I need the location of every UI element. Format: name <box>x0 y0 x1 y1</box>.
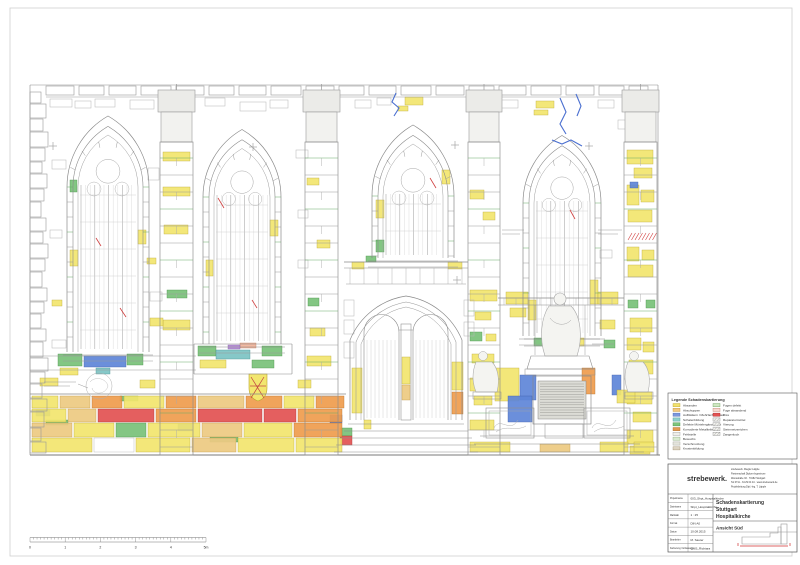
damage-patch-G <box>470 332 482 341</box>
damage-patch-Y <box>244 423 292 437</box>
damage-patch-Y <box>140 380 155 388</box>
damage-patch-Y <box>627 247 639 261</box>
damage-patch-Y <box>627 150 653 164</box>
legend-swatch <box>673 408 680 411</box>
stone-outline <box>130 100 154 109</box>
tracery-rosette <box>551 177 573 199</box>
legend-box: Legende Schadenskartierung AbsandenAbsch… <box>668 393 797 459</box>
damage-patch-T <box>68 409 96 422</box>
damage-patch-T <box>540 444 570 452</box>
damage-patch-G <box>646 300 655 308</box>
drawing-line <box>639 233 643 240</box>
pinnacle-cap <box>161 112 192 142</box>
field-label: Datum <box>670 530 677 533</box>
damage-patch-O <box>298 409 342 422</box>
crack-blue <box>552 140 582 146</box>
damage-patch-Y <box>206 260 213 276</box>
damage-patch-Y <box>60 368 78 375</box>
legend-swatch <box>673 413 680 416</box>
stone-outline <box>499 86 526 95</box>
legend-swatch <box>713 413 720 416</box>
stone-outline <box>30 174 47 188</box>
damage-patch-Y <box>364 420 371 429</box>
tracery-rosette <box>96 159 120 183</box>
legend-label: Steinmetzzeichen <box>723 428 748 432</box>
pinnacle-cap <box>466 90 502 112</box>
damage-patch-T <box>60 396 90 408</box>
damage-patch-G <box>127 354 143 365</box>
drawing-line <box>404 151 405 157</box>
drawing-line <box>141 167 146 170</box>
damage-patch-B <box>84 356 126 367</box>
damage-patch-Y <box>164 225 188 234</box>
pinnacle-cap <box>158 90 195 112</box>
damage-patch-B <box>508 396 532 422</box>
damage-patch-O <box>452 392 463 414</box>
field-label: Maßstab <box>670 514 680 517</box>
stone-outline <box>531 86 561 95</box>
stone-outline <box>240 102 266 111</box>
drawing-line <box>436 160 439 165</box>
damage-patch-Y <box>442 170 450 184</box>
legend-label: Fuge absandend <box>723 408 747 412</box>
damage-patch-Y <box>270 220 278 236</box>
legend-label: Korrodierte Metallteile <box>683 428 713 432</box>
field-value: QMS_Richtara <box>691 546 711 550</box>
stone-outline <box>209 86 234 95</box>
address-line: Projektleitung Dipl.-Ing. T. Läpple <box>731 486 767 489</box>
damage-patch-Y <box>643 342 654 352</box>
damage-patch-G <box>262 346 282 356</box>
drawing-line <box>583 169 586 174</box>
drawing-sheet-page: Legende Schadenskartierung AbsandenAbsch… <box>0 0 800 565</box>
stone-outline <box>30 189 44 201</box>
stone-outline <box>30 358 48 371</box>
field-label: Format <box>670 522 678 525</box>
damage-patch-Y <box>627 338 641 350</box>
damage-patch-T <box>198 396 244 408</box>
damage-patch-R <box>198 409 262 422</box>
drawing-path <box>67 116 149 352</box>
stone-outline <box>377 98 391 105</box>
damage-patch-T <box>192 438 236 452</box>
legend-label: Absanden <box>683 404 697 408</box>
stone-outline <box>50 99 72 107</box>
drawing-line <box>387 160 390 165</box>
damage-patch-Y <box>475 312 491 320</box>
logo-text: strebewerk. <box>687 474 727 483</box>
pinnacle-cap <box>622 90 659 112</box>
drawing-path <box>209 140 275 344</box>
crack-red <box>252 300 257 308</box>
stone-outline <box>95 99 115 107</box>
legend-swatch <box>673 423 680 426</box>
field-value: DIN A0 <box>691 521 701 525</box>
damage-patch-Y <box>486 334 496 341</box>
tracery-circle <box>569 198 582 211</box>
scale-label: 1 <box>64 546 66 550</box>
damage-patch-T <box>402 385 410 400</box>
stone-outline <box>239 86 266 95</box>
scale-label: 3 <box>135 546 137 550</box>
damage-patch-Y <box>298 380 311 388</box>
legend-label: Riss <box>723 413 729 417</box>
damage-patch-Y <box>124 396 164 408</box>
drawing-line <box>628 233 632 240</box>
scale-label: 5m <box>204 546 209 550</box>
stone-outline <box>270 100 288 108</box>
stone-outline <box>30 314 41 328</box>
legend-swatch <box>713 408 720 411</box>
tracery-circle <box>249 192 262 205</box>
statue-pedestal <box>527 356 593 369</box>
crack-red <box>430 178 436 188</box>
drawing-line <box>217 163 220 168</box>
damage-patch-Y <box>470 190 484 199</box>
stone-outline <box>298 260 308 268</box>
drawing-path <box>378 135 448 258</box>
portal-door-arch <box>364 315 399 421</box>
legend-label: Abschuppen <box>683 408 700 412</box>
damage-patch-Y <box>200 360 226 368</box>
stone-outline <box>30 119 43 131</box>
legend-swatch <box>673 447 680 450</box>
damage-patch-G <box>628 300 638 308</box>
damage-patch-Y <box>633 412 651 422</box>
damage-patch-Y <box>642 250 654 260</box>
stone-outline <box>30 104 46 118</box>
stone-outline <box>50 230 62 238</box>
damage-patch-Y <box>307 356 331 366</box>
drawing-path <box>78 135 138 352</box>
damage-patch-G <box>198 346 216 356</box>
damage-patch-Y <box>536 101 554 108</box>
damage-patch-Y <box>634 168 652 178</box>
drawing-path <box>496 426 526 432</box>
portal-door-arch <box>413 315 448 421</box>
drawing-line <box>526 184 531 187</box>
drawing-line <box>263 163 266 168</box>
drawing-path <box>203 130 281 345</box>
stone-outline <box>30 232 43 243</box>
drawing-line <box>82 151 85 156</box>
statue-side-figure <box>625 362 649 392</box>
tracery-circle <box>222 192 235 205</box>
stone-outline <box>296 150 308 158</box>
damage-patch-G <box>116 423 146 437</box>
statue-side-figure <box>473 362 498 392</box>
pinnacle-cap <box>625 112 656 142</box>
damage-patch-Y <box>474 396 492 405</box>
crack-marks-layer <box>49 93 657 317</box>
damage-patch-T <box>202 423 242 437</box>
crack-blue <box>560 98 566 134</box>
field-value: Shpt_Hospitalkirche <box>691 505 718 509</box>
drawing-line <box>131 151 134 156</box>
stone-outline <box>109 86 136 95</box>
stone-outline <box>369 86 396 95</box>
damage-patch-Y <box>628 210 652 222</box>
project-title-line: Schadenskartierung <box>716 500 764 506</box>
damage-patch-Y <box>317 240 330 248</box>
legend-swatch <box>673 404 680 407</box>
stone-outline <box>344 342 354 358</box>
damage-patch-Y <box>310 328 325 336</box>
drawing-line <box>635 233 639 240</box>
damage-patch-Y <box>600 320 615 329</box>
drawing-line <box>553 160 554 166</box>
drawing-sheet: Legende Schadenskartierung AbsandenAbsch… <box>0 0 800 565</box>
damage-patch-R <box>98 409 154 422</box>
stone-outline <box>355 100 371 108</box>
damage-patch-Y <box>238 438 294 452</box>
damage-patch-Y <box>470 420 494 430</box>
project-title-line: Hospitalkirche <box>716 514 751 520</box>
damage-patch-Y <box>147 258 156 264</box>
stone-outline <box>566 86 594 95</box>
legend-label: Vierung <box>723 423 734 427</box>
stone-outline <box>30 272 42 287</box>
drawing-line <box>537 169 540 174</box>
statue-central-figure <box>542 306 581 356</box>
damage-patch-Y <box>150 318 163 326</box>
drawing-line <box>206 178 211 181</box>
legend-swatch <box>673 442 680 445</box>
drawing-line <box>642 233 646 240</box>
stone-outline <box>46 86 74 95</box>
damage-patch-Y <box>74 423 114 437</box>
legend-label: Fehlstelle <box>683 432 697 436</box>
drawing-line <box>421 151 422 157</box>
damage-patch-Y <box>405 97 423 105</box>
damage-patch-Y <box>70 250 78 266</box>
scale-label: 0 <box>29 546 31 550</box>
drawing-line <box>99 142 100 148</box>
drawing-line <box>70 167 75 170</box>
damage-patch-Y <box>352 368 362 413</box>
stone-outline <box>599 86 624 95</box>
statue-head <box>479 352 488 361</box>
damage-patch-B <box>630 182 638 188</box>
stone-outline <box>401 86 431 95</box>
damage-patch-Y <box>452 362 463 390</box>
stone-outline <box>339 86 364 95</box>
title-block: strebewerk. strebewerk. Riegler LäpplePa… <box>668 464 797 552</box>
pinnacle-cap <box>306 112 337 142</box>
drawing-path <box>90 379 108 394</box>
damage-patch-O <box>316 396 344 408</box>
legend-label: Schalenbildung <box>683 418 704 422</box>
legend-swatch <box>713 404 720 407</box>
legend-label: Verschmutzung <box>683 442 705 446</box>
drawing-path <box>594 426 624 432</box>
drawing-line <box>653 233 657 240</box>
field-label: Dateiname <box>670 505 682 508</box>
drawing-line <box>632 233 636 240</box>
stone-outline <box>30 342 43 357</box>
legend-label: Zangenloch <box>723 432 739 436</box>
tracery-rosette <box>231 171 253 193</box>
damage-patch-Y <box>284 396 314 408</box>
damage-patch-T <box>32 423 72 437</box>
scale-label: 4 <box>170 546 172 550</box>
damage-patch-G <box>308 298 319 306</box>
stone-outline <box>344 300 354 316</box>
crack-blue <box>576 94 581 116</box>
damage-patch-Y <box>630 318 652 332</box>
damage-patch-W <box>94 438 134 452</box>
address-line: strebewerk. Riegler Läpple <box>731 468 760 471</box>
address-line: Tel 0711 - 34 29 04 44 · www.strebewerk.… <box>731 481 778 484</box>
statue-head <box>630 352 639 361</box>
damage-patch-O <box>166 396 196 408</box>
tracery-circle <box>392 191 406 205</box>
drawing-path <box>214 149 270 345</box>
stone-outline <box>30 132 48 147</box>
damage-patch-Y <box>534 110 548 115</box>
stone-outline <box>79 86 104 95</box>
drawing-path <box>73 126 143 352</box>
field-value: M. Sauter <box>691 538 704 542</box>
stone-outline <box>600 250 612 258</box>
crack-red <box>96 238 101 246</box>
legend-swatch <box>673 432 680 435</box>
address-line: Werastraße 33 · 70182 Stuttgart <box>731 477 766 480</box>
legend-swatch <box>673 437 680 440</box>
scale-bar: 012345m <box>29 538 208 550</box>
view-label: Ansicht Süd <box>716 526 743 531</box>
damage-patch-G <box>70 180 77 192</box>
stone-outline <box>30 202 41 217</box>
tracery-rosette <box>401 168 425 192</box>
drawing-line <box>78 384 88 388</box>
damage-patch-Y <box>402 357 410 384</box>
field-label: Projektname <box>670 497 684 500</box>
stone-outline <box>205 98 225 106</box>
damage-patch-O <box>156 409 196 422</box>
drawing-line <box>116 142 117 148</box>
damage-patch-Y <box>296 438 342 452</box>
stone-outline <box>344 320 354 334</box>
project-title-line: Stuttgart <box>716 507 737 513</box>
drawing-line <box>593 184 598 187</box>
stone-outline <box>298 210 308 218</box>
stone-outline <box>30 259 45 271</box>
legend-label: Fugen defekt <box>723 404 741 408</box>
tracery-circle <box>87 182 101 196</box>
legend-label: Krustenbildung <box>683 447 704 451</box>
damage-patch-Y <box>136 438 190 452</box>
legend-title: Legende Schadenskartierung <box>672 398 726 402</box>
stone-outline <box>75 101 91 108</box>
stone-outline <box>52 340 66 348</box>
damage-patch-Y <box>470 290 497 301</box>
crack-blue <box>392 93 399 116</box>
damage-patch-Y <box>307 178 319 185</box>
stone-outline <box>148 168 159 180</box>
pinnacle-cap <box>303 90 340 112</box>
damage-patch-Y <box>398 106 408 111</box>
damage-patch-Y <box>590 280 598 304</box>
relief-panel <box>587 411 627 435</box>
damage-patch-Y <box>52 300 62 306</box>
damage-patch-G <box>252 360 274 368</box>
drawing-line <box>649 233 653 240</box>
drawing-line <box>250 154 251 160</box>
drawing-path <box>372 125 454 258</box>
scale-label: 2 <box>99 546 101 550</box>
stone-outline <box>30 302 44 313</box>
damage-patch-C <box>216 350 250 359</box>
crack-red <box>120 308 126 317</box>
statue-head <box>554 293 566 305</box>
drawing-line <box>646 233 650 240</box>
stone-outline <box>500 100 518 108</box>
stone-outline <box>464 300 474 316</box>
stone-outline <box>52 160 66 169</box>
stone-outline <box>598 100 614 108</box>
drawing-line <box>375 176 380 179</box>
stone-outline <box>30 244 48 258</box>
drawing-line <box>233 154 234 160</box>
damage-patch-Y <box>510 308 526 317</box>
address-line: Partnerschaft Diplom-Ingenieure <box>731 472 766 475</box>
drawing-path <box>592 420 616 428</box>
legend-label: Reparaturmörtel <box>723 418 746 422</box>
damage-patch-Y <box>483 212 495 220</box>
stone-outline <box>30 329 46 341</box>
stone-outline <box>30 162 42 173</box>
stone-outline <box>30 218 46 231</box>
pinnacle-cap <box>469 112 499 142</box>
field-label: Bearbeiter <box>670 539 681 542</box>
legend-swatch <box>673 428 680 431</box>
stone-outline <box>271 86 301 95</box>
legend-label: Bewuchs <box>683 437 696 441</box>
crack-red <box>218 198 224 208</box>
stone-outline <box>30 288 47 301</box>
stone-outline <box>436 86 464 95</box>
field-value: 10.08.2015 <box>691 530 706 534</box>
drawing-line <box>570 160 571 166</box>
stone-outline <box>30 148 45 161</box>
tracery-circle <box>542 198 555 211</box>
damage-patch-O <box>92 396 122 408</box>
stone-outline <box>30 92 41 103</box>
field-value: 1 : 25 <box>691 513 699 517</box>
damage-patch-R <box>264 409 296 422</box>
drawing-path <box>383 144 443 258</box>
legend-swatch <box>673 418 680 421</box>
drawing-line <box>273 178 278 181</box>
